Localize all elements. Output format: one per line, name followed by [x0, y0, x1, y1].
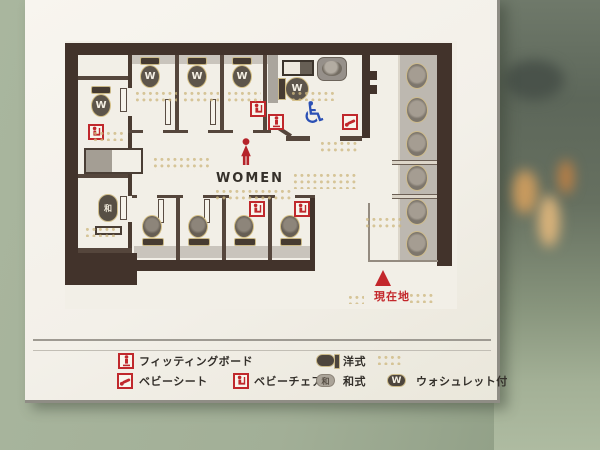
washlet-letter: W [140, 65, 160, 88]
legend-label-squat: 和式 [343, 373, 366, 390]
fitting-board-icon [118, 353, 134, 369]
closet-left [86, 150, 112, 172]
western-toilet-icon [234, 215, 254, 246]
wall-segment [78, 76, 128, 80]
baby-chair-icon [294, 201, 310, 217]
western-toilet-icon [188, 215, 208, 246]
washlet-toilet-icon: W [91, 86, 111, 117]
counter-divider [392, 160, 437, 165]
entrance-threshold [368, 260, 438, 262]
washlet-toilet-icon: W [232, 57, 252, 88]
sink-icon [406, 97, 428, 123]
restroom-map-sign: W ♿ W W W W 和 [25, 0, 500, 403]
braille-dots [183, 91, 219, 103]
legend-label-washlet: ウォシュレット付 [416, 373, 508, 390]
baby-chair-icon [250, 101, 266, 117]
washlet-toilet-icon: W [187, 57, 207, 88]
current-location-marker [375, 270, 391, 286]
door-opening [137, 195, 157, 198]
fitting-board-icon [268, 114, 284, 130]
wall-segment [310, 195, 315, 260]
door-opening [143, 130, 163, 133]
floor-plan: W ♿ W W W W 和 [65, 41, 457, 309]
baby-sheet-icon [342, 114, 358, 130]
western-toilet-icon [316, 354, 335, 367]
washlet-icon: W [387, 374, 406, 387]
washlet-toilet-icon: W [140, 57, 160, 88]
sink-icon [406, 165, 428, 191]
sink-icon [406, 63, 428, 89]
braille-dots [377, 355, 403, 365]
legend-divider [33, 339, 491, 341]
accessible-room-side-panel [268, 55, 278, 103]
baby-sheet-icon [117, 373, 133, 389]
stall-door [120, 196, 127, 220]
wall-segment [78, 248, 132, 253]
reflection-light-blob [512, 170, 538, 214]
counter-edge [398, 55, 400, 261]
legend-divider [33, 350, 491, 351]
legend-label-western: 洋式 [343, 353, 366, 370]
wall-top [72, 43, 450, 55]
braille-dots [85, 227, 115, 237]
legend-label-baby-chair: ベビーチェア [254, 373, 323, 390]
stall-partition [268, 195, 272, 260]
legend-label-fitting-board: フィッティングボード [139, 353, 253, 370]
braille-dots [291, 91, 335, 101]
restroom-map-photo: W ♿ W W W W 和 [0, 0, 600, 450]
stall-door [120, 88, 127, 112]
wall-tab [370, 71, 377, 80]
western-toilet-icon [280, 215, 300, 246]
door-opening [128, 196, 132, 222]
table-surface [284, 62, 300, 74]
braille-dots [93, 131, 123, 141]
door-opening [128, 88, 132, 116]
wall-right [437, 43, 452, 266]
western-toilet-icon [142, 215, 162, 246]
woman-pictogram [235, 138, 257, 168]
sink-icon [406, 199, 428, 225]
wall-segment [78, 174, 128, 178]
utility-closet [84, 148, 143, 174]
stall-partition [176, 195, 180, 260]
braille-dots [365, 217, 405, 229]
washlet-letter: W [91, 94, 111, 117]
squat-toilet-icon: 和 [316, 374, 335, 387]
glass-reflection [494, 0, 600, 450]
wall-bottom [130, 260, 315, 271]
wall-tab [370, 85, 377, 94]
stall-partition [220, 55, 224, 133]
legend-label-baby-sheet: ベビーシート [139, 373, 208, 390]
wheelchair-icon: ♿ [301, 97, 335, 133]
sink-icon [406, 231, 428, 257]
closet-right [112, 150, 141, 172]
entrance-wall-line [368, 203, 370, 260]
braille-dots [348, 295, 364, 304]
door-opening [233, 130, 253, 133]
baby-chair-icon [233, 373, 249, 389]
door-opening [183, 195, 203, 198]
sink-icon [406, 131, 428, 157]
large-basin-icon [317, 57, 347, 81]
braille-dots [135, 91, 177, 103]
wall-bottom-left-block [65, 253, 137, 285]
baby-changing-table-icon [282, 60, 314, 76]
baby-chair-icon [249, 201, 265, 217]
stall-partition [263, 55, 267, 133]
washlet-letter: W [232, 65, 252, 88]
room-label: WOMEN [210, 171, 290, 187]
squat-toilet-icon: 和 [98, 194, 118, 222]
wall-left [65, 43, 78, 285]
braille-dots [409, 293, 435, 303]
braille-dots [215, 189, 293, 202]
reflection-dark-blob [504, 60, 564, 100]
counter-divider [392, 194, 437, 199]
reflection-light-blob [558, 160, 574, 194]
braille-dots [227, 91, 261, 103]
table-pad [300, 62, 312, 74]
braille-dots [320, 141, 360, 153]
washlet-letter: W [187, 65, 207, 88]
stall-partition [222, 195, 226, 260]
accessible-room-wall [362, 55, 370, 138]
reflection-light-blob [538, 195, 560, 247]
door-opening [188, 130, 208, 133]
braille-dots [153, 157, 211, 171]
braille-dots [293, 173, 357, 189]
